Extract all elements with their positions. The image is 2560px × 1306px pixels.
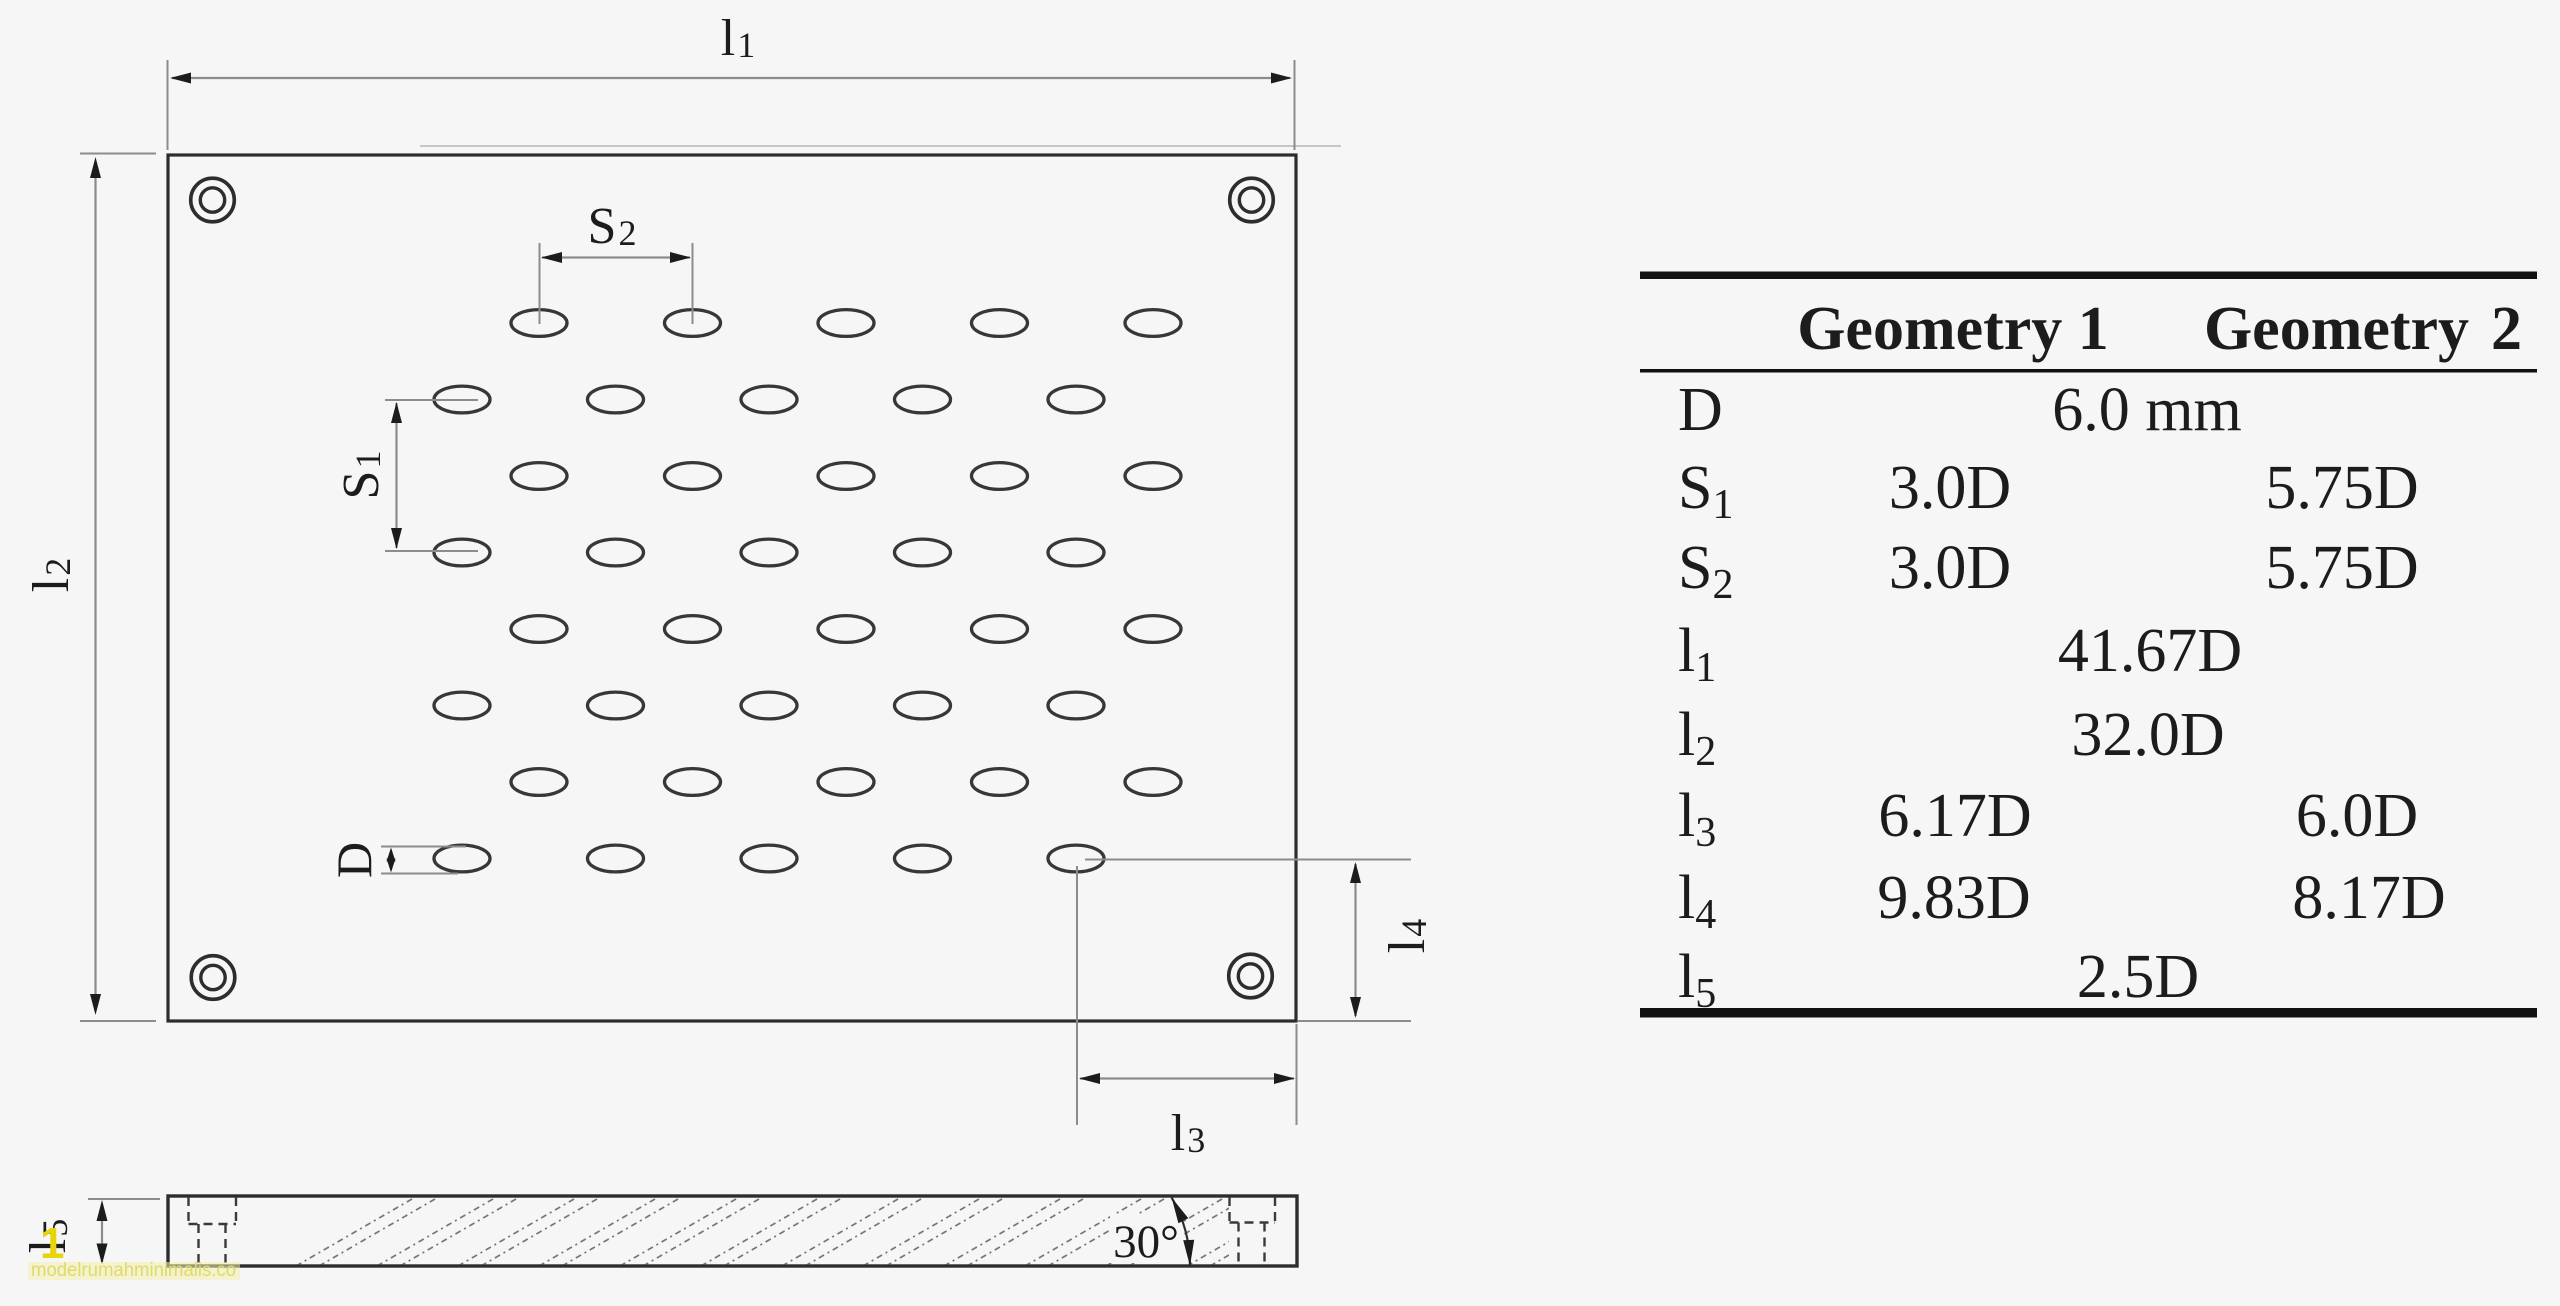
svg-text:9.83D: 9.83D	[1877, 864, 2030, 932]
svg-text:5.75D: 5.75D	[2265, 534, 2418, 602]
svg-text:modelrumahminimalis.co: modelrumahminimalis.co	[31, 1260, 236, 1281]
svg-text:41.67D: 41.67D	[2058, 617, 2242, 685]
svg-text:3.0D: 3.0D	[1889, 534, 2011, 602]
svg-text:6.17D: 6.17D	[1878, 782, 2031, 850]
svg-text:5.75D: 5.75D	[2265, 454, 2418, 522]
svg-text:Geometry 1: Geometry 1	[1797, 295, 2109, 363]
svg-text:32.0D: 32.0D	[2071, 701, 2224, 769]
svg-text:30°: 30°	[1113, 1216, 1179, 1268]
svg-text:D: D	[326, 842, 382, 878]
svg-text:3.0D: 3.0D	[1889, 454, 2011, 522]
svg-text:6.0D: 6.0D	[2296, 782, 2418, 850]
svg-text:D: D	[1678, 376, 1723, 444]
svg-text:2.5D: 2.5D	[2077, 943, 2199, 1011]
svg-text:6.0 mm: 6.0 mm	[2052, 376, 2241, 444]
svg-text:8.17D: 8.17D	[2292, 864, 2445, 932]
